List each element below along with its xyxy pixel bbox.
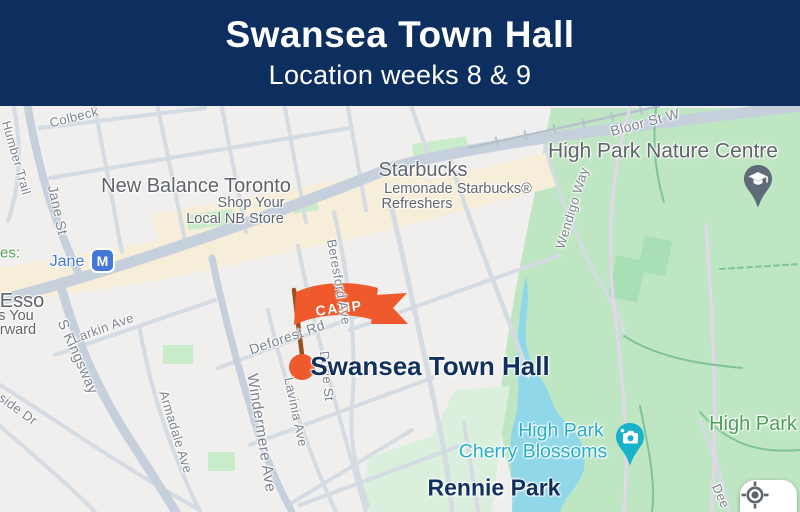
map-label-new-balance-sub1: Shop Your xyxy=(218,196,285,211)
subway-station-icon[interactable]: M xyxy=(92,250,113,271)
map-label-starbucks-sub1: Lemonade Starbucks® xyxy=(384,182,532,197)
map-label-jane-station-label[interactable]: Jane xyxy=(50,254,85,270)
graduation-cap-pin[interactable] xyxy=(743,164,773,210)
map-label-town-hall-label: Swansea Town Hall xyxy=(310,353,549,379)
map-label-hp-cherry-2[interactable]: Cherry Blossoms xyxy=(459,442,607,462)
header-banner: Swansea Town Hall Location weeks 8 & 9 xyxy=(0,0,800,106)
map-label-esso-sub2: rward xyxy=(0,323,36,338)
map-label-new-balance-sub2: Local NB Store xyxy=(186,212,284,227)
cherry-blossoms-pin[interactable] xyxy=(615,422,645,468)
map-label-starbucks[interactable]: Starbucks xyxy=(379,160,468,180)
map-label-starbucks-sub2: Refreshers xyxy=(382,197,453,212)
screen: Swansea Town Hall Location weeks 8 & 9 xyxy=(0,0,800,512)
page-title: Swansea Town Hall xyxy=(225,15,574,56)
map-label-high-park[interactable]: High Park xyxy=(709,414,797,434)
crosshair-icon xyxy=(740,480,770,510)
map-label-new-balance[interactable]: New Balance Toronto xyxy=(101,176,291,196)
map-label-es: es: xyxy=(0,246,20,261)
map[interactable]: M CAMP ColbeckHumber TrailJane StS Kings… xyxy=(0,106,800,512)
my-location-button[interactable] xyxy=(740,480,797,512)
map-label-hp-nature-centre[interactable]: High Park Nature Centre xyxy=(548,141,778,162)
page-subtitle: Location weeks 8 & 9 xyxy=(269,60,532,91)
map-label-rennie-park[interactable]: Rennie Park xyxy=(428,477,561,500)
map-label-hp-cherry-1[interactable]: High Park xyxy=(518,421,604,441)
